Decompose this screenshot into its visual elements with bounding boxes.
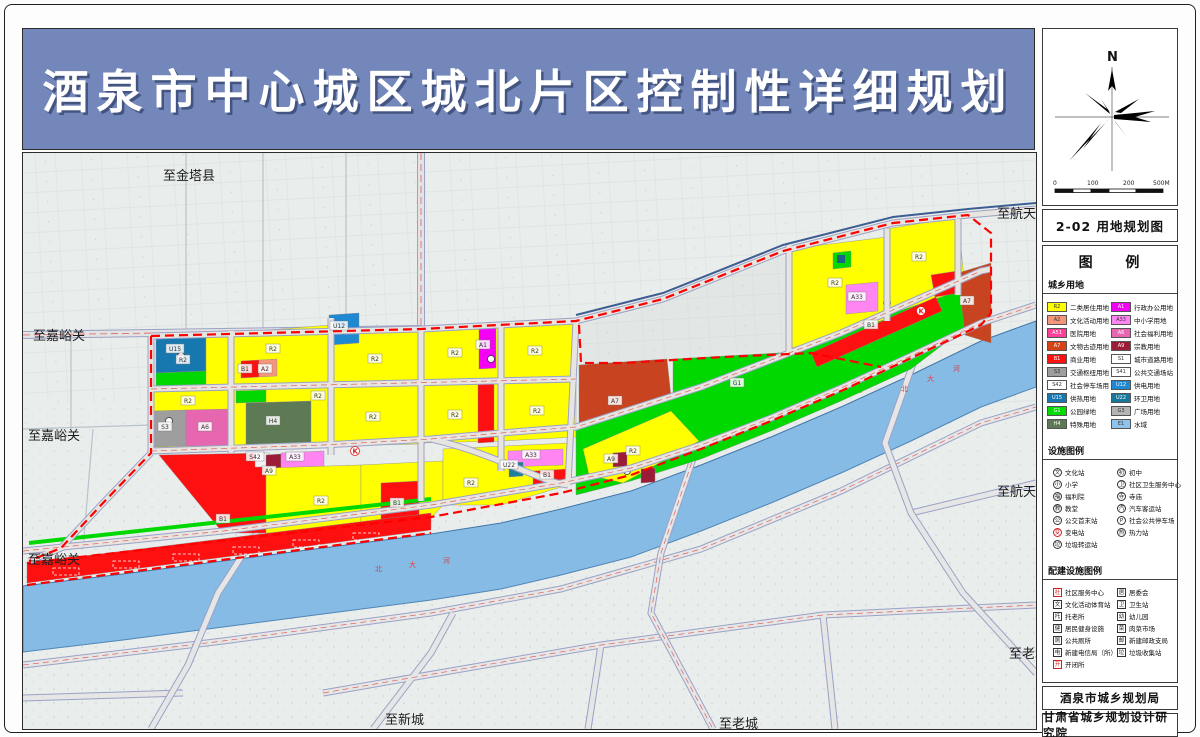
parcel-code: A33 xyxy=(522,450,540,459)
facility-label: 新建邮政支局 xyxy=(1129,635,1168,645)
landuse-swatch: A51 xyxy=(1047,328,1067,338)
parcel-code: R2 xyxy=(828,278,842,287)
parcel-code: R2 xyxy=(626,446,640,455)
landuse-swatch: S3 xyxy=(1047,367,1067,377)
legend-row: 变变电站 xyxy=(1047,526,1109,538)
legend-row: B1商业用地 xyxy=(1047,352,1109,365)
legend-row: U15供热用地 xyxy=(1047,391,1109,404)
landuse-swatch: G1 xyxy=(1047,406,1067,416)
edge-destination-label: 至嘉峪关 xyxy=(28,553,80,568)
legend-row: 小小学 xyxy=(1047,478,1109,490)
parcel-code: R2 xyxy=(448,410,462,419)
supporting-legend: 社社区服务中心文文化活动体育站托托老所健居民健身设施厕公共厕所电新建电信局（所）… xyxy=(1043,586,1177,670)
legend-row: 菜肉菜市场 xyxy=(1111,622,1173,634)
parcel-code: R2 xyxy=(368,354,382,363)
facility-label: 文化活动体育站 xyxy=(1065,599,1111,609)
facility-label: 福利院 xyxy=(1065,491,1085,501)
svg-text:R2: R2 xyxy=(533,408,541,415)
compass-box: N xyxy=(1042,28,1178,206)
design-institute-box: 甘肃省城乡规划设计研究院 xyxy=(1042,713,1178,737)
legend-box: 图 例 城乡用地 R2二类居住用地A2文化活动用地A51医院用地A7文物古迹用地… xyxy=(1042,245,1178,683)
landuse-swatch: G3 xyxy=(1111,406,1131,416)
svg-text:A7: A7 xyxy=(611,398,619,405)
landuse-swatch: U22 xyxy=(1111,393,1131,403)
legend-row: 卫卫生站 xyxy=(1111,598,1173,610)
facility-label: 垃圾收集站 xyxy=(1129,647,1162,657)
facility-legend-header: 设施图例 xyxy=(1043,442,1177,460)
parcel-code: S42 xyxy=(246,452,264,461)
landuse-swatch: S1 xyxy=(1111,354,1131,364)
authority-box: 酒泉市城乡规划局 xyxy=(1042,686,1178,710)
svg-text:R2: R2 xyxy=(179,357,187,364)
facility-label: 文化站 xyxy=(1065,467,1085,477)
facility-label: 汽车客运站 xyxy=(1129,503,1162,513)
landuse-swatch: U12 xyxy=(1111,380,1131,390)
landuse-swatch: A7 xyxy=(1047,341,1067,351)
svg-text:K: K xyxy=(919,308,925,316)
legend-row: A2文化活动用地 xyxy=(1047,313,1109,326)
legend-title: 图 例 xyxy=(1043,250,1177,276)
river-name-char: 河 xyxy=(953,365,960,373)
parcel-code: R2 xyxy=(176,355,190,364)
legend-row: 幼幼儿园 xyxy=(1111,610,1173,622)
landuse-label: 供电用地 xyxy=(1134,380,1160,390)
landuse-swatch: S42 xyxy=(1047,380,1067,390)
parcel-code: S3 xyxy=(158,422,172,431)
supporting-facility-icon: 卫 xyxy=(1117,600,1126,609)
legend-row: U12供电用地 xyxy=(1111,378,1173,391)
river-name-char: 大 xyxy=(927,374,934,383)
svg-text:A9: A9 xyxy=(607,456,615,463)
design-institute-name: 甘肃省城乡规划设计研究院 xyxy=(1043,709,1177,737)
legend-row: A1行政办公用地 xyxy=(1111,300,1173,313)
landuse-label: 公共交通场站用地 xyxy=(1134,367,1173,377)
facility-label: 幼儿园 xyxy=(1129,611,1149,621)
svg-text:H4: H4 xyxy=(269,418,278,425)
facility-icon: 公 xyxy=(1053,516,1062,525)
facility-label: 社区服务中心 xyxy=(1065,587,1104,597)
legend-row: 厕公共厕所 xyxy=(1047,634,1109,646)
legend-row: A7文物古迹用地 xyxy=(1047,339,1109,352)
landuse-legend-header: 城乡用地 xyxy=(1043,276,1177,294)
facility-icon: 教 xyxy=(1053,504,1062,513)
landuse-label: 二类居住用地 xyxy=(1070,302,1109,312)
parcel-code: A33 xyxy=(848,292,866,301)
planning-sheet: 酒泉市中心城区城北片区控制性详细规划 xyxy=(0,0,1200,737)
sheet-number: 2-02 用地规划图 xyxy=(1056,216,1164,235)
svg-text:S3: S3 xyxy=(161,424,169,431)
svg-text:R2: R2 xyxy=(531,348,539,355)
parcel-code: A6 xyxy=(198,422,212,431)
svg-text:R2: R2 xyxy=(451,350,459,357)
facility-label: 卫生站 xyxy=(1129,599,1149,609)
landuse-swatch: R2 xyxy=(1047,302,1067,312)
supporting-facility-icon: 开 xyxy=(1053,660,1062,669)
facility-label: 热力站 xyxy=(1129,527,1149,537)
legend-row: 电新建电信局（所） xyxy=(1047,646,1109,658)
landuse-swatch: U15 xyxy=(1047,393,1067,403)
facility-label: 初中 xyxy=(1129,467,1142,477)
landuse-label: 社会停车场用地 xyxy=(1070,380,1109,390)
landuse-swatch: A1 xyxy=(1111,302,1131,312)
parcel-code: R2 xyxy=(266,344,280,353)
edge-destination-label: 至航天城 xyxy=(997,206,1036,222)
landuse-swatch: A9 xyxy=(1111,341,1131,351)
parcel-code: U12 xyxy=(330,321,348,330)
parcel-code: B1 xyxy=(238,364,252,373)
svg-text:A7: A7 xyxy=(963,298,971,305)
landuse-swatch: A6 xyxy=(1111,328,1131,338)
legend-row: 托托老所 xyxy=(1047,610,1109,622)
landuse-swatch: B1 xyxy=(1047,354,1067,364)
parcel-code: B1 xyxy=(216,514,230,523)
svg-text:R2: R2 xyxy=(629,448,637,455)
supporting-facility-icon: 居 xyxy=(1117,588,1126,597)
facility-icon: 变 xyxy=(1053,528,1062,537)
svg-text:A33: A33 xyxy=(525,452,537,459)
legend-row: A6社会福利用地 xyxy=(1111,326,1173,339)
parcel-code: R2 xyxy=(314,496,328,505)
parcel-code: R2 xyxy=(464,478,478,487)
legend-row: A51医院用地 xyxy=(1047,326,1109,339)
landuse-swatch: H4 xyxy=(1047,419,1067,429)
facility-label: 教堂 xyxy=(1065,503,1078,513)
landuse-label: 城市道路用地 xyxy=(1134,354,1173,364)
landuse-label: 交通枢纽用地 xyxy=(1070,367,1109,377)
parcel-code: A9 xyxy=(604,454,618,463)
parcel-code: K xyxy=(917,307,926,316)
svg-text:R2: R2 xyxy=(831,280,839,287)
parcel-code: H4 xyxy=(266,416,280,425)
supporting-facility-icon: 菜 xyxy=(1117,624,1126,633)
svg-text:R2: R2 xyxy=(451,412,459,419)
edge-destination-label: 至新城 xyxy=(385,712,424,728)
landuse-label: 文物古迹用地 xyxy=(1070,341,1109,351)
parcel-code: A7 xyxy=(960,296,974,305)
svg-text:R2: R2 xyxy=(467,480,475,487)
facility-icon: 垃 xyxy=(1053,540,1062,549)
facility-label: 托老所 xyxy=(1065,611,1085,621)
legend-row: S3交通枢纽用地 xyxy=(1047,365,1109,378)
svg-text:B1: B1 xyxy=(219,516,227,523)
facility-label: 社会公共停车场 xyxy=(1129,515,1175,525)
parcel-code: R2 xyxy=(912,252,926,261)
edge-destination-label: 至嘉峪关 xyxy=(28,429,80,444)
facility-label: 居民健身设施 xyxy=(1065,623,1104,633)
scale-number: 500M xyxy=(1153,180,1170,187)
svg-text:U12: U12 xyxy=(333,323,345,330)
facility-icon: 寺 xyxy=(1117,492,1126,501)
svg-text:R2: R2 xyxy=(317,498,325,505)
legend-row: 文文化站 xyxy=(1047,466,1109,478)
scale-number: 100 xyxy=(1087,180,1099,187)
parcel-code: R2 xyxy=(528,346,542,355)
parcel-code: A9 xyxy=(262,466,276,475)
supporting-facility-icon: 社 xyxy=(1053,588,1062,597)
legend-row: 热热力站 xyxy=(1111,526,1173,538)
parcel-code: B1 xyxy=(390,498,404,507)
facility-label: 社区卫生服务中心 xyxy=(1129,479,1181,489)
parcel-code: B1 xyxy=(864,320,878,329)
landuse-label: 水域 xyxy=(1134,419,1147,429)
legend-row: 居居委会 xyxy=(1111,586,1173,598)
svg-text:A2: A2 xyxy=(261,366,269,373)
river-name-char: 北 xyxy=(375,565,382,573)
legend-row: 初初中 xyxy=(1111,466,1173,478)
landuse-label: 环卫用地 xyxy=(1134,393,1160,403)
svg-text:B1: B1 xyxy=(543,472,551,479)
river-name-char: 河 xyxy=(443,557,450,565)
landuse-label: 供热用地 xyxy=(1070,393,1096,403)
parcel-code: R2 xyxy=(530,406,544,415)
legend-row: 垃垃圾转运站 xyxy=(1047,538,1109,550)
svg-text:R2: R2 xyxy=(184,398,192,405)
svg-text:R2: R2 xyxy=(371,356,379,363)
legend-row: 健居民健身设施 xyxy=(1047,622,1109,634)
parcel-code: U22 xyxy=(500,460,518,469)
parcel-code: R2 xyxy=(311,391,325,400)
legend-row: G3广场用地 xyxy=(1111,404,1173,417)
edge-destination-label: 至老城 xyxy=(1009,647,1036,662)
landuse-label: 医院用地 xyxy=(1070,328,1096,338)
svg-text:A9: A9 xyxy=(265,468,273,475)
parcel-code: B1 xyxy=(540,470,554,479)
legend-row: S41公共交通场站用地 xyxy=(1111,365,1173,378)
scale-number: 200 xyxy=(1123,180,1135,187)
facility-icon: 福 xyxy=(1053,492,1062,501)
parcel-code: A1 xyxy=(476,340,490,349)
svg-text:A33: A33 xyxy=(289,454,301,461)
parcel-code: G1 xyxy=(730,378,744,387)
facility-label: 居委会 xyxy=(1129,587,1149,597)
svg-text:R2: R2 xyxy=(369,414,377,421)
facility-icon: 初 xyxy=(1117,468,1126,477)
legend-row: H4特殊用地 xyxy=(1047,417,1109,430)
facility-label: 变电站 xyxy=(1065,527,1085,537)
landuse-label: 宗教用地 xyxy=(1134,341,1160,351)
legend-row: 开开闭所 xyxy=(1047,658,1109,670)
facility-label: 公共厕所 xyxy=(1065,635,1091,645)
svg-text:B1: B1 xyxy=(241,366,249,373)
supporting-facility-icon: 文 xyxy=(1053,600,1062,609)
svg-text:S42: S42 xyxy=(249,454,261,461)
legend-row: 公公交首末站 xyxy=(1047,514,1109,526)
legend-row: U22环卫用地 xyxy=(1111,391,1173,404)
parcel-code: R2 xyxy=(448,348,462,357)
parcel-code: R2 xyxy=(366,412,380,421)
svg-text:K: K xyxy=(353,448,359,456)
supporting-facility-icon: 邮 xyxy=(1117,636,1126,645)
svg-text:U15: U15 xyxy=(169,346,181,353)
legend-row: 社社区服务中心 xyxy=(1047,586,1109,598)
supporting-facility-icon: 健 xyxy=(1053,624,1062,633)
edge-destination-label: 至嘉峪关 xyxy=(33,329,85,344)
facility-icon: 热 xyxy=(1117,528,1126,537)
north-label: N xyxy=(1107,50,1118,65)
parcel-code: A7 xyxy=(608,396,622,405)
supporting-facility-icon: 垃 xyxy=(1117,648,1126,657)
parcel-code: K xyxy=(351,447,360,456)
landuse-swatch: A33 xyxy=(1111,315,1131,325)
svg-text:A1: A1 xyxy=(479,342,487,349)
scale-bar: 0100200500M xyxy=(1053,180,1170,193)
supporting-facility-icon: 电 xyxy=(1053,648,1062,657)
edge-destination-label: 至老城 xyxy=(719,717,758,729)
facility-icon: P xyxy=(1117,516,1126,525)
facility-label: 寺庙 xyxy=(1129,491,1142,501)
svg-text:A33: A33 xyxy=(851,294,863,301)
svg-text:U22: U22 xyxy=(503,462,515,469)
landuse-legend: R2二类居住用地A2文化活动用地A51医院用地A7文物古迹用地B1商业用地S3交… xyxy=(1043,300,1177,430)
landuse-label: 行政办公用地 xyxy=(1134,302,1173,312)
landuse-label: 特殊用地 xyxy=(1070,419,1096,429)
legend-row: 教教堂 xyxy=(1047,502,1109,514)
facility-icon: 文 xyxy=(1053,468,1062,477)
legend-row: 垃垃圾收集站 xyxy=(1111,646,1173,658)
legend-row: 文文化活动体育站 xyxy=(1047,598,1109,610)
landuse-label: 商业用地 xyxy=(1070,354,1096,364)
svg-text:R2: R2 xyxy=(915,254,923,261)
svg-text:B1: B1 xyxy=(867,322,875,329)
legend-row: E1水域 xyxy=(1111,417,1173,430)
landuse-label: 中小学用地 xyxy=(1134,315,1167,325)
supporting-legend-header: 配建设施图例 xyxy=(1043,562,1177,580)
sheet-number-box: 2-02 用地规划图 xyxy=(1042,209,1178,242)
map-canvas[interactable]: 北大河北大河 R2R2R2R2R2R2R2R2R2R2R2R2R2R2R2U15… xyxy=(23,153,1036,729)
svg-text:B1: B1 xyxy=(393,500,401,507)
landuse-map[interactable]: 北大河北大河 R2R2R2R2R2R2R2R2R2R2R2R2R2R2R2U15… xyxy=(22,152,1037,730)
parcel-code: A2 xyxy=(258,364,272,373)
facility-label: 新建电信局（所） xyxy=(1065,647,1117,657)
legend-row: G1公园绿地 xyxy=(1047,404,1109,417)
facility-label: 小学 xyxy=(1065,479,1078,489)
legend-row: S1城市道路用地 xyxy=(1111,352,1173,365)
landuse-swatch: A2 xyxy=(1047,315,1067,325)
compass-rose: N xyxy=(1043,29,1177,205)
facility-icon: 汽 xyxy=(1117,504,1126,513)
river-name-char: 大 xyxy=(409,560,416,569)
supporting-facility-icon: 托 xyxy=(1053,612,1062,621)
parcel-code: A33 xyxy=(286,452,304,461)
legend-row: 卫社区卫生服务中心 xyxy=(1111,478,1173,490)
svg-text:R2: R2 xyxy=(314,393,322,400)
facility-icon: 小 xyxy=(1053,480,1062,489)
legend-row: R2二类居住用地 xyxy=(1047,300,1109,313)
svg-text:A6: A6 xyxy=(201,424,209,431)
landuse-swatch: E1 xyxy=(1111,419,1131,429)
river-name-char: 北 xyxy=(901,385,908,393)
edge-destination-label: 至航天城 xyxy=(997,484,1036,500)
title-banner: 酒泉市中心城区城北片区控制性详细规划 xyxy=(22,28,1035,150)
legend-row: S42社会停车场用地 xyxy=(1047,378,1109,391)
landuse-label: 社会福利用地 xyxy=(1134,328,1173,338)
page-title: 酒泉市中心城区城北片区控制性详细规划 xyxy=(43,56,1015,122)
legend-row: 邮新建邮政支局 xyxy=(1111,634,1173,646)
facility-label: 垃圾转运站 xyxy=(1065,539,1098,549)
scale-number: 0 xyxy=(1053,180,1057,187)
landuse-swatch: S41 xyxy=(1111,367,1131,377)
parcel-code: U15 xyxy=(166,344,184,353)
supporting-facility-icon: 幼 xyxy=(1117,612,1126,621)
legend-row: 福福利院 xyxy=(1047,490,1109,502)
side-panel: N xyxy=(1042,28,1178,737)
facility-label: 肉菜市场 xyxy=(1129,623,1155,633)
svg-text:G1: G1 xyxy=(733,380,742,387)
facility-label: 开闭所 xyxy=(1065,659,1085,669)
legend-row: P社会公共停车场 xyxy=(1111,514,1173,526)
legend-row: A9宗教用地 xyxy=(1111,339,1173,352)
svg-text:R2: R2 xyxy=(269,346,277,353)
landuse-label: 文化活动用地 xyxy=(1070,315,1109,325)
supporting-facility-icon: 厕 xyxy=(1053,636,1062,645)
legend-row: A33中小学用地 xyxy=(1111,313,1173,326)
landuse-label: 广场用地 xyxy=(1134,406,1160,416)
parcel-code: R2 xyxy=(181,396,195,405)
facility-icon: 卫 xyxy=(1117,480,1126,489)
facility-label: 公交首末站 xyxy=(1065,515,1098,525)
landuse-label: 公园绿地 xyxy=(1070,406,1096,416)
facility-legend: 文文化站小小学福福利院教教堂公公交首末站变变电站垃垃圾转运站 初初中卫社区卫生服… xyxy=(1043,466,1177,550)
legend-row: 寺寺庙 xyxy=(1111,490,1173,502)
authority-name: 酒泉市城乡规划局 xyxy=(1060,690,1160,706)
legend-row: 汽汽车客运站 xyxy=(1111,502,1173,514)
edge-destination-label: 至金塔县 xyxy=(163,168,215,184)
